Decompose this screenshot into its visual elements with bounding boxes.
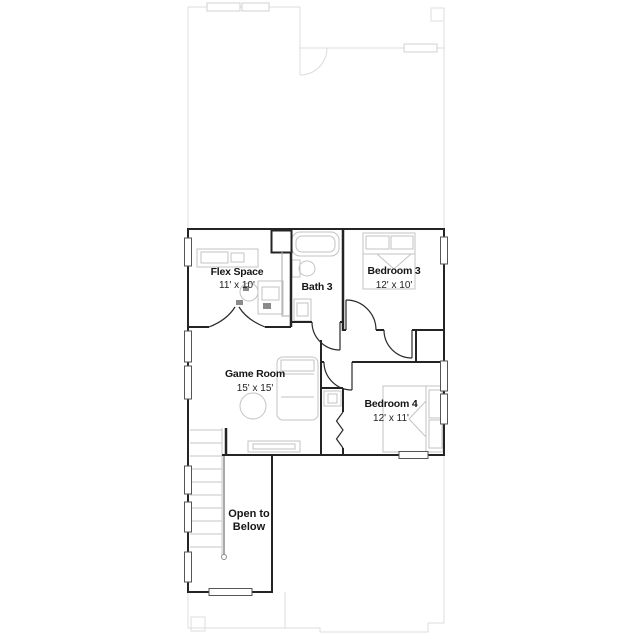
door-flex-double [209, 307, 265, 327]
window-open-below-bottom [209, 589, 252, 596]
bedroom3-label: Bedroom 3 [367, 265, 420, 277]
stairs [190, 428, 222, 556]
flex-space-label: Flex Space [211, 266, 264, 278]
window-bedroom4-right-1 [441, 361, 448, 391]
game-room-label: Game Room [225, 368, 285, 380]
window-stair-left-2 [185, 502, 192, 532]
closet-shelf-icon [324, 391, 341, 406]
bathtub-icon [292, 232, 339, 256]
open-to-below-label-line1: Open to [228, 508, 270, 520]
bedroom3-dims: 12' x 10' [376, 280, 413, 291]
window-bedroom4-right-2 [441, 394, 448, 424]
bedroom4-dims: 12' x 11' [373, 413, 409, 424]
bath3-label: Bath 3 [302, 281, 333, 293]
window-bedroom3-right [441, 237, 448, 264]
toilet-icon [292, 260, 315, 277]
media-console-icon [248, 441, 300, 452]
floor-plan-drawing: Flex Space 11' x 10' Bath 3 Bedroom 3 12… [0, 0, 640, 640]
floor-plan-page: Flex Space 11' x 10' Bath 3 Bedroom 3 12… [0, 0, 640, 640]
sofa-icon [277, 357, 318, 420]
window-flex-left [185, 238, 192, 266]
window-game-left-1 [185, 331, 192, 362]
faint-porch-post [191, 617, 205, 631]
open-to-below-label-line2: Below [233, 521, 266, 533]
window-bedroom4-bottom [399, 452, 428, 459]
door-linen-closet [384, 330, 412, 358]
window-game-left-2 [185, 366, 192, 399]
faint-chimney-box [431, 8, 444, 21]
door-bedroom4 [324, 362, 352, 390]
door-closet-bifold [337, 412, 344, 448]
flex-closet [272, 231, 292, 253]
flex-space-dims: 11' x 10' [219, 280, 255, 291]
door-bedroom3 [346, 300, 376, 330]
faint-door-arc [300, 48, 327, 75]
window-stair-left-1 [185, 466, 192, 494]
newel-post [222, 555, 227, 560]
sink-icon [294, 299, 311, 321]
door-bath3 [312, 322, 340, 350]
ottoman-icon [240, 393, 266, 419]
window-stair-left-3 [185, 552, 192, 582]
bedroom4-label: Bedroom 4 [364, 398, 417, 410]
game-room-dims: 15' x 15' [237, 383, 274, 394]
